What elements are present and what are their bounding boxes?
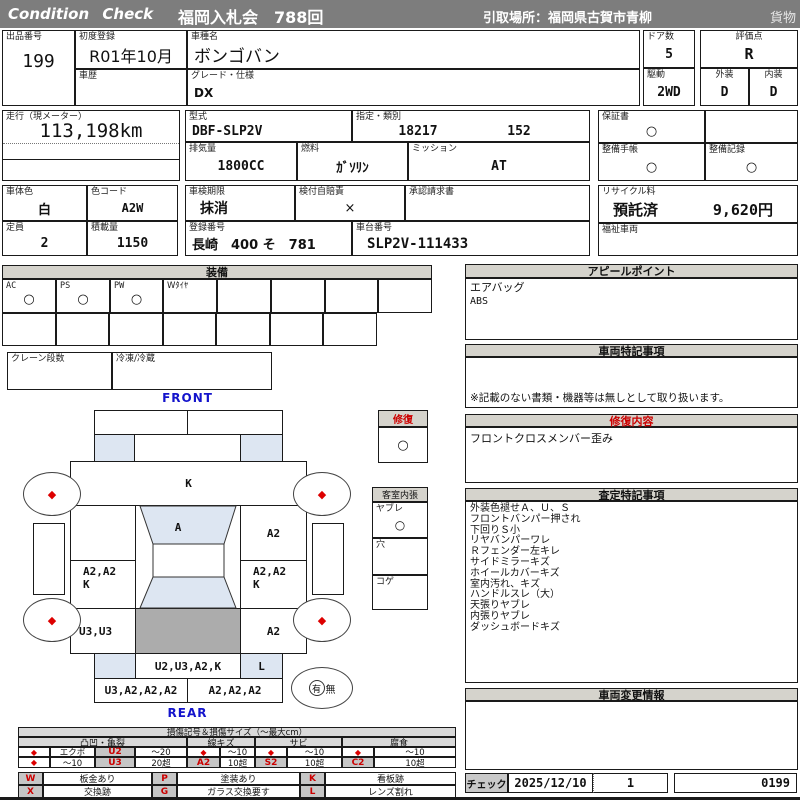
spare-tire-indicator: 有 無: [291, 667, 353, 709]
insurance-value: ×: [296, 196, 404, 220]
panel-quarter-left-label: U3,U3: [79, 625, 112, 638]
panel-rear-bumper-left: U3,A2,A2,A2: [94, 678, 188, 703]
diamond-icon: ◆: [200, 747, 206, 758]
transmission-value: AT: [409, 153, 589, 180]
field-capacity: 定員 2: [2, 221, 87, 256]
field-first-registration: 初度登録 R01年10月: [75, 30, 187, 69]
diagram-rear-label: REAR: [140, 706, 235, 720]
field-blank: [705, 110, 798, 143]
grade-value: DX: [188, 80, 639, 105]
wheel-front-left: ◆: [23, 472, 81, 516]
panel-door-left-label: A2,A2: [83, 565, 135, 578]
equipment-cell-empty-2: [271, 279, 325, 313]
check-label-text: チェック: [467, 776, 507, 791]
equipment-wtire-label: Wﾀｲﾔ: [167, 281, 188, 291]
equipment-header: 装備: [2, 265, 432, 279]
legend-code-x-label: X: [27, 787, 34, 797]
repair-flag-header-label: 修復: [393, 411, 413, 426]
cabin-box-header: 客室内張: [372, 487, 428, 502]
field-grade: グレード・仕様 DX: [187, 69, 640, 106]
check-count: 1: [593, 773, 668, 793]
legend-code-s2: S2: [265, 758, 278, 768]
equipment-cell-ac: AC ○: [2, 279, 56, 313]
field-vehicle-history: 車歴: [75, 69, 187, 106]
check-date-value: 2025/12/10: [514, 776, 586, 790]
panel-cowl-corner-right: [240, 434, 283, 462]
equipment-cell-r2-4: [163, 313, 216, 346]
legend-r2-code2: A2: [187, 757, 220, 768]
field-approval-request: 承認請求書: [405, 185, 590, 221]
equipment-cell-wtire: Wﾀｲﾔ: [163, 279, 217, 313]
legend-r2-text1-label: 〜10: [63, 757, 82, 769]
field-recycle-fee: リサイクル料 預託済 9,620円: [598, 185, 798, 223]
maintenance-book-value: ○: [599, 154, 704, 180]
panel-hood: K: [70, 461, 307, 506]
legend-text-w: 板金あり: [43, 772, 152, 785]
legend-r2-size1: 20超: [135, 757, 187, 768]
panel-rear-bumper-left-label: U3,A2,A2,A2: [105, 684, 178, 697]
legend-code-l-label: L: [310, 787, 316, 797]
field-drive: 駆動 2WD: [643, 68, 695, 106]
legend-code-k-label: K: [309, 774, 316, 784]
panel-front-bumper-right: [187, 410, 283, 435]
assessment-line: ホイールカバーキズ: [470, 569, 793, 580]
field-welfare-vehicle-label: 福祉車両: [602, 225, 638, 235]
legend-col-rust: サビ: [255, 737, 342, 747]
field-vehicle-history-label: 車歴: [79, 71, 97, 81]
field-transmission: ミッション AT: [408, 142, 590, 181]
spare-tire-absent-label: 無: [326, 681, 336, 696]
legend-code-w: W: [18, 772, 43, 785]
maintenance-record-value: ○: [706, 154, 797, 180]
first-registration-value: R01年10月: [76, 41, 186, 68]
equipment-cell-r2-6: [270, 313, 323, 346]
assessment-line: フロントバンパー押され: [470, 515, 793, 526]
appeal-line: エアバッグ: [470, 281, 793, 295]
field-warranty-book: 保証書 ○: [598, 110, 705, 143]
legend-r2-code1: U3: [95, 757, 135, 768]
exterior-grade-value: D: [701, 79, 748, 105]
displacement-value: 1800CC: [186, 153, 296, 180]
repair-flag-header: 修復: [378, 410, 428, 427]
field-crane-stages: クレーン段数: [7, 352, 112, 390]
equipment-cell-empty-3: [325, 279, 378, 313]
panel-rear-bumper-right-label: A2,A2,A2: [209, 684, 262, 697]
spare-tire-present-mark: 有: [309, 680, 325, 696]
legend-r1-size4: 〜10: [374, 747, 456, 757]
panel-front-fender-left: [70, 505, 136, 561]
legend-col-corrosion: 腐食: [342, 737, 456, 747]
panel-cowl-center: [134, 434, 241, 462]
legend-code-u2: U2: [108, 747, 122, 757]
legend-code-k: K: [300, 772, 325, 785]
cabin-row-hole: 穴: [372, 538, 428, 575]
repair-flag-value: ○: [378, 427, 428, 463]
change-info-header: 車両変更情報: [465, 688, 798, 701]
equipment-header-label: 装備: [206, 264, 228, 280]
panel-rocker-left: [33, 523, 65, 595]
panel-front-fender-right-label: A2: [267, 527, 280, 540]
chassis-number-value: SLP2V-111433: [353, 232, 589, 255]
inspection-expiry-value: 抹消: [186, 196, 294, 220]
field-inspection-expiry: 車検期限 抹消: [185, 185, 295, 221]
cabin-row-burn-label: コゲ: [376, 577, 394, 587]
field-load-capacity: 積載量 1150: [87, 221, 178, 256]
doors-value: 5: [644, 41, 694, 67]
equipment-cell-r2-3: [109, 313, 163, 346]
field-registration-number: 登録番号 長崎 400 そ 781: [185, 221, 352, 256]
panel-door-left-label2: K: [83, 578, 135, 591]
check-label: チェック: [465, 773, 508, 793]
assessment-header: 査定特記事項: [465, 488, 798, 501]
equipment-cell-r2-7: [323, 313, 377, 346]
legend-r2-size4-label: 10超: [405, 757, 424, 769]
legend-r1-mark4: ◆: [342, 747, 374, 757]
field-approval-request-label: 承認請求書: [409, 187, 454, 197]
cabin-box-header-label: 客室内張: [382, 488, 418, 501]
legend-r2-size2-label: 10超: [228, 757, 247, 769]
legend-text-w-label: 板金あり: [79, 772, 115, 785]
panel-rear-gate: U2,U3,A2,K: [135, 653, 241, 679]
auction-title: 福岡入札会 788回: [178, 4, 323, 28]
field-crane-stages-label: クレーン段数: [11, 354, 65, 364]
legend-text-k: 看板跡: [325, 772, 456, 785]
check-date: 2025/12/10: [508, 773, 593, 793]
field-welfare-vehicle: 福祉車両: [598, 223, 798, 256]
color-code-value: A2W: [88, 196, 177, 220]
vehicle-category: 貨物: [770, 7, 796, 26]
equipment-cell-empty-1: [217, 279, 271, 313]
panel-roof: [135, 608, 241, 654]
registration-number-value: 長崎 400 そ 781: [186, 232, 351, 255]
score-value: R: [701, 41, 797, 67]
panel-front-bumper-left: [94, 410, 188, 435]
legend-r1-size3: 〜10: [287, 747, 342, 757]
panel-door-right-label: A2,A2: [253, 565, 306, 578]
top-bar: Condition Check 福岡入札会 788回 引取場所：福岡県古賀市青柳…: [0, 0, 800, 28]
legend-r2-size3-label: 10超: [305, 757, 324, 769]
diagram-front-label: FRONT: [140, 391, 235, 405]
cabin-row-tear-value: ○: [373, 513, 427, 537]
field-refrigeration: 冷凍/冷蔵: [112, 352, 272, 390]
appeal-header: アピールポイント: [465, 264, 798, 278]
panel-hood-label: K: [185, 477, 192, 490]
legend-r2-mark1: ◆: [18, 757, 50, 768]
field-color-code: 色コード A2W: [87, 185, 178, 221]
field-lot-number: 出品番号 199: [2, 30, 75, 106]
cabin-row-tear: ヤブレ ○: [372, 502, 428, 538]
legend-r1-size1: 〜20: [135, 747, 187, 757]
vehicle-notes-body: ※記載のない書類・機器等は無しとして取り扱います。: [465, 357, 798, 408]
field-displacement: 排気量 1800CC: [185, 142, 297, 181]
panel-rocker-right: [312, 523, 344, 595]
class-number-value-1: 18217: [363, 121, 473, 141]
body-color-value: 白: [3, 196, 86, 220]
legend-text-p: 塗装あり: [177, 772, 300, 785]
vehicle-notes-header: 車両特記事項: [465, 344, 798, 357]
assessment-body: 外装色褪せＡ、Ｕ、Ｓ フロントバンパー押され 下回りＳ小 リヤバンパーワレ Ｒフ…: [465, 501, 798, 683]
check-number-value: 0199: [761, 776, 790, 790]
equipment-ps-value: ○: [57, 286, 109, 312]
repair-details-body: フロントクロスメンバー歪み: [465, 427, 798, 483]
equipment-cell-pw: PW ○: [110, 279, 163, 313]
field-maintenance-book: 整備手帳 ○: [598, 143, 705, 181]
field-exterior-grade: 外装 D: [700, 68, 749, 106]
panel-tail-lamp: L: [240, 653, 283, 679]
field-model-name: 車種名 ボンゴバン: [187, 30, 640, 69]
class-number-value-2: 152: [479, 121, 559, 141]
legend-r1-mark1: ◆: [18, 747, 50, 757]
field-score: 評価点 R: [700, 30, 798, 68]
interior-grade-value: D: [750, 79, 797, 105]
field-insurance: 検付自賠責 ×: [295, 185, 405, 221]
assessment-line: ダッシュボードキズ: [470, 623, 793, 634]
check-count-value: 1: [627, 776, 634, 790]
model-name-value: ボンゴバン: [188, 41, 639, 68]
legend-r2-size2: 10超: [220, 757, 255, 768]
drive-value: 2WD: [644, 79, 694, 105]
change-info-body: [465, 701, 798, 770]
repair-flag-mark: ○: [397, 438, 408, 453]
field-chassis-number: 車台番号 SLP2V-111433: [352, 221, 590, 256]
appeal-line: ABS: [470, 295, 793, 309]
mileage-divider-solid: [3, 159, 179, 160]
legend-r2-code3: S2: [255, 757, 287, 768]
pickup-location: 引取場所：福岡県古賀市青柳: [483, 7, 652, 26]
legend-code-p-label: P: [161, 774, 168, 784]
legend-r2-size1-label: 20超: [151, 757, 170, 769]
legend-r2-code4: C2: [342, 757, 374, 768]
legend-r1-code1: U2: [95, 747, 135, 757]
equipment-cell-r2-2: [56, 313, 109, 346]
panel-door-right-label2: K: [253, 578, 306, 591]
equipment-cell-ps: PS ○: [56, 279, 110, 313]
field-refrigeration-label: 冷凍/冷蔵: [116, 354, 155, 364]
check-number: 0199: [674, 773, 797, 793]
legend-r1-size2: 〜10: [220, 747, 255, 757]
model-code-value: DBF-SLP2V: [186, 121, 351, 141]
mileage-value: 113,198km: [3, 119, 179, 142]
damage-diamond-icon: ◆: [48, 615, 56, 626]
legend-r2-size3: 10超: [287, 757, 342, 768]
panel-rear-bumper-right: A2,A2,A2: [187, 678, 283, 703]
warranty-book-value: ○: [599, 121, 704, 142]
legend-code-g-label: G: [161, 787, 168, 797]
damage-diamond-icon: ◆: [48, 489, 56, 500]
panel-windshield-label: A: [175, 521, 182, 534]
damage-diamond-icon: ◆: [318, 615, 326, 626]
field-doors: ドア数 5: [643, 30, 695, 68]
cabin-row-hole-label: 穴: [376, 540, 385, 550]
field-interior-grade: 内装 D: [749, 68, 798, 106]
diamond-icon: ◆: [31, 757, 37, 768]
field-body-color: 車体色 白: [2, 185, 87, 221]
legend-code-u3: U3: [108, 758, 122, 768]
lot-number-value: 199: [3, 37, 74, 85]
panel-windshield: A: [158, 516, 198, 535]
legend-r1-text1: エクボ: [50, 747, 95, 757]
wheel-front-right: ◆: [293, 472, 351, 516]
panel-cowl-corner-left: [94, 434, 135, 462]
equipment-cell-empty-4: [378, 279, 432, 313]
field-mileage: 走行（現メーター） 113,198km: [2, 110, 180, 181]
recycle-fee-value: 9,620円: [599, 196, 797, 222]
cabin-row-burn: コゲ: [372, 575, 428, 610]
panel-quarter-right-label: A2: [267, 625, 280, 638]
equipment-ac-value: ○: [3, 286, 55, 312]
legend-r2-text1: 〜10: [50, 757, 95, 768]
diamond-icon: ◆: [31, 747, 37, 758]
legend-text-p-label: 塗装あり: [220, 772, 256, 785]
repair-details-line: フロントクロスメンバー歪み: [470, 430, 793, 446]
field-model-code: 型式 DBF-SLP2V: [185, 110, 352, 142]
equipment-cell-r2-5: [216, 313, 270, 346]
repair-details-header: 修復内容: [465, 414, 798, 427]
brand-logo: Condition Check: [8, 5, 153, 23]
appeal-header-label: アピールポイント: [588, 263, 676, 279]
panel-rear-corner-left: [94, 653, 136, 679]
legend-r1-mark3: ◆: [255, 747, 287, 757]
diamond-icon: ◆: [355, 747, 361, 758]
panel-rear-gate-label: U2,U3,A2,K: [155, 660, 221, 673]
fuel-value: ｶﾞｿﾘﾝ: [298, 153, 407, 180]
legend-r1-mark2: ◆: [187, 747, 220, 757]
panel-door-left: A2,A2 K: [70, 560, 136, 609]
field-maintenance-record: 整備記録 ○: [705, 143, 798, 181]
equipment-cell-r2-1: [2, 313, 56, 346]
panel-tail-lamp-label: L: [258, 660, 265, 673]
legend-code-w-label: W: [26, 774, 36, 784]
vehicle-notes-disclaimer: ※記載のない書類・機器等は無しとして取り扱います。: [470, 390, 729, 405]
load-capacity-value: 1150: [88, 232, 177, 255]
capacity-value: 2: [3, 232, 86, 255]
field-fuel: 燃料 ｶﾞｿﾘﾝ: [297, 142, 408, 181]
legend-code-a2: A2: [197, 758, 210, 768]
mileage-divider-dotted: [3, 143, 179, 144]
diamond-icon: ◆: [268, 747, 274, 758]
panel-front-fender-right: A2: [240, 505, 307, 561]
damage-diamond-icon: ◆: [318, 489, 326, 500]
appeal-body: エアバッグ ABS: [465, 278, 798, 340]
legend-code-p: P: [152, 772, 177, 785]
legend-text-k-label: 看板跡: [377, 772, 404, 785]
auction-sheet: Condition Check 福岡入札会 788回 引取場所：福岡県古賀市青柳…: [0, 0, 800, 800]
wheel-rear-left: ◆: [23, 598, 81, 642]
legend-r2-size4: 10超: [374, 757, 456, 768]
wheel-rear-right: ◆: [293, 598, 351, 642]
equipment-pw-value: ○: [111, 286, 162, 312]
field-class-number: 指定・類別 18217 152: [352, 110, 590, 142]
panel-door-right: A2,A2 K: [240, 560, 307, 609]
legend-code-c2: C2: [352, 758, 365, 768]
